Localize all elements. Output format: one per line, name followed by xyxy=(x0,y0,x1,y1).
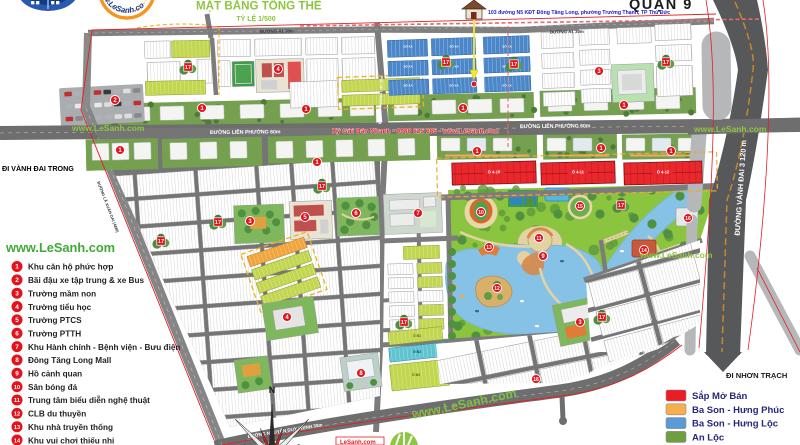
svg-text:2: 2 xyxy=(15,277,19,284)
svg-text:Ba Son - Hưng Lộc: Ba Son - Hưng Lộc xyxy=(692,419,778,430)
svg-text:SỐ XA: SỐ XA xyxy=(449,83,459,88)
svg-text:Sắp Mở Bán: Sắp Mở Bán xyxy=(692,390,748,402)
svg-text:17: 17 xyxy=(663,60,669,66)
svg-text:4: 4 xyxy=(15,304,19,311)
svg-text:Trường mầm non: Trường mầm non xyxy=(28,289,96,298)
svg-text:CLB du thuyền: CLB du thuyền xyxy=(28,410,86,419)
svg-text:10: 10 xyxy=(14,385,20,391)
svg-text:10: 10 xyxy=(478,210,484,216)
svg-text:16: 16 xyxy=(685,216,691,222)
svg-text:ĐƯỜNG A1 30m: ĐƯỜNG A1 30m xyxy=(550,29,584,35)
svg-text:3: 3 xyxy=(15,290,19,297)
svg-text:17: 17 xyxy=(618,203,624,209)
svg-text:12: 12 xyxy=(14,412,20,418)
svg-text:17: 17 xyxy=(319,184,325,190)
svg-text:17: 17 xyxy=(511,62,517,68)
svg-text:ĐI VÀNH ĐAI TRONG: ĐI VÀNH ĐAI TRONG xyxy=(2,164,74,173)
svg-text:Hồ cảnh quan: Hồ cảnh quan xyxy=(28,370,82,379)
svg-text:17: 17 xyxy=(215,220,221,226)
svg-text:Ô B2: Ô B2 xyxy=(413,349,421,354)
svg-text:An Lộc: An Lộc xyxy=(692,432,724,443)
svg-text:Bãi đậu xe tập trung & xe Bus: Bãi đậu xe tập trung & xe Bus xyxy=(28,276,144,285)
svg-text:Khu nhà truyền thống: Khu nhà truyền thống xyxy=(28,423,113,432)
svg-text:ĐƯỜNG A1 30m: ĐƯỜNG A1 30m xyxy=(260,28,294,34)
svg-text:ĐI NHƠN TRẠCH: ĐI NHƠN TRẠCH xyxy=(726,371,787,380)
svg-text:Ô 4-11: Ô 4-11 xyxy=(572,169,585,174)
svg-text:18: 18 xyxy=(533,377,539,383)
svg-text:N: N xyxy=(269,385,276,395)
svg-text:5: 5 xyxy=(15,317,19,324)
svg-text:9: 9 xyxy=(15,371,19,378)
svg-text:15: 15 xyxy=(577,204,583,210)
svg-text:Ô 4-10: Ô 4-10 xyxy=(488,169,501,174)
svg-text:SỐ XA: SỐ XA xyxy=(403,44,413,49)
svg-text:Khu vui chơi thiếu nhi: Khu vui chơi thiếu nhi xyxy=(28,436,114,445)
svg-text:12: 12 xyxy=(494,286,500,292)
svg-text:14: 14 xyxy=(14,438,21,444)
svg-text:www.LeSanh.com: www.LeSanh.com xyxy=(693,124,767,134)
svg-text:Sân bóng đá: Sân bóng đá xyxy=(28,383,78,392)
svg-text:Ô 4-12: Ô 4-12 xyxy=(657,169,670,174)
svg-text:11: 11 xyxy=(14,398,20,404)
svg-text:LeSanh.com: LeSanh.com xyxy=(340,440,376,445)
svg-text:17: 17 xyxy=(599,315,605,321)
svg-text:www.LeSanh.com: www.LeSanh.com xyxy=(639,250,713,260)
svg-text:13: 13 xyxy=(486,245,492,251)
svg-text:SỐ XA: SỐ XA xyxy=(449,44,459,49)
svg-text:Trường PTCS: Trường PTCS xyxy=(28,316,82,325)
svg-text:1: 1 xyxy=(15,264,19,271)
svg-text:7: 7 xyxy=(15,344,19,351)
svg-text:17: 17 xyxy=(158,239,164,245)
svg-text:www.LeSanh.com: www.LeSanh.com xyxy=(71,123,145,133)
svg-text:Khu Hành chính - Bệnh viện - B: Khu Hành chính - Bệnh viện - Bưu điện xyxy=(28,343,180,352)
svg-text:Trường PTTH: Trường PTTH xyxy=(28,329,81,338)
svg-text:TỶ LỆ 1/500: TỶ LỆ 1/500 xyxy=(236,14,275,23)
svg-text:103 đường N5 KĐT Đông Tăng Lon: 103 đường N5 KĐT Đông Tăng Long, phường … xyxy=(488,10,670,16)
svg-text:Ba Son - Hưng Phúc: Ba Son - Hưng Phúc xyxy=(692,405,784,416)
svg-text:Trung tâm biểu diễn nghệ thuật: Trung tâm biểu diễn nghệ thuật xyxy=(28,395,150,405)
svg-text:Ô B1: Ô B1 xyxy=(413,333,421,338)
svg-text:11: 11 xyxy=(536,236,542,242)
svg-text:Đông Tăng Long Mall: Đông Tăng Long Mall xyxy=(28,356,111,365)
svg-text:SỐ XA: SỐ XA xyxy=(502,44,512,49)
svg-text:www.LeSanh.com: www.LeSanh.com xyxy=(5,240,115,255)
svg-text:Khu căn hộ phức hợp: Khu căn hộ phức hợp xyxy=(28,263,113,272)
svg-text:8: 8 xyxy=(15,357,19,364)
svg-text:17: 17 xyxy=(443,60,449,66)
svg-text:SỐ XA: SỐ XA xyxy=(502,83,512,88)
svg-text:13: 13 xyxy=(14,425,20,431)
svg-text:Trường tiểu học: Trường tiểu học xyxy=(28,302,92,312)
svg-text:MẶT BẰNG TỔNG THỂ: MẶT BẰNG TỔNG THỂ xyxy=(196,0,322,13)
svg-text:Ô B3: Ô B3 xyxy=(412,372,420,377)
svg-text:Ký Gửi Bán Nhanh - 0988 625 68: Ký Gửi Bán Nhanh - 0988 625 685 - www.Le… xyxy=(332,128,499,135)
svg-text:17: 17 xyxy=(401,320,407,326)
svg-text:SỐ XA: SỐ XA xyxy=(403,64,413,69)
svg-text:SỐ XA: SỐ XA xyxy=(403,83,413,88)
svg-text:6: 6 xyxy=(15,330,19,337)
svg-text:17: 17 xyxy=(185,65,191,71)
